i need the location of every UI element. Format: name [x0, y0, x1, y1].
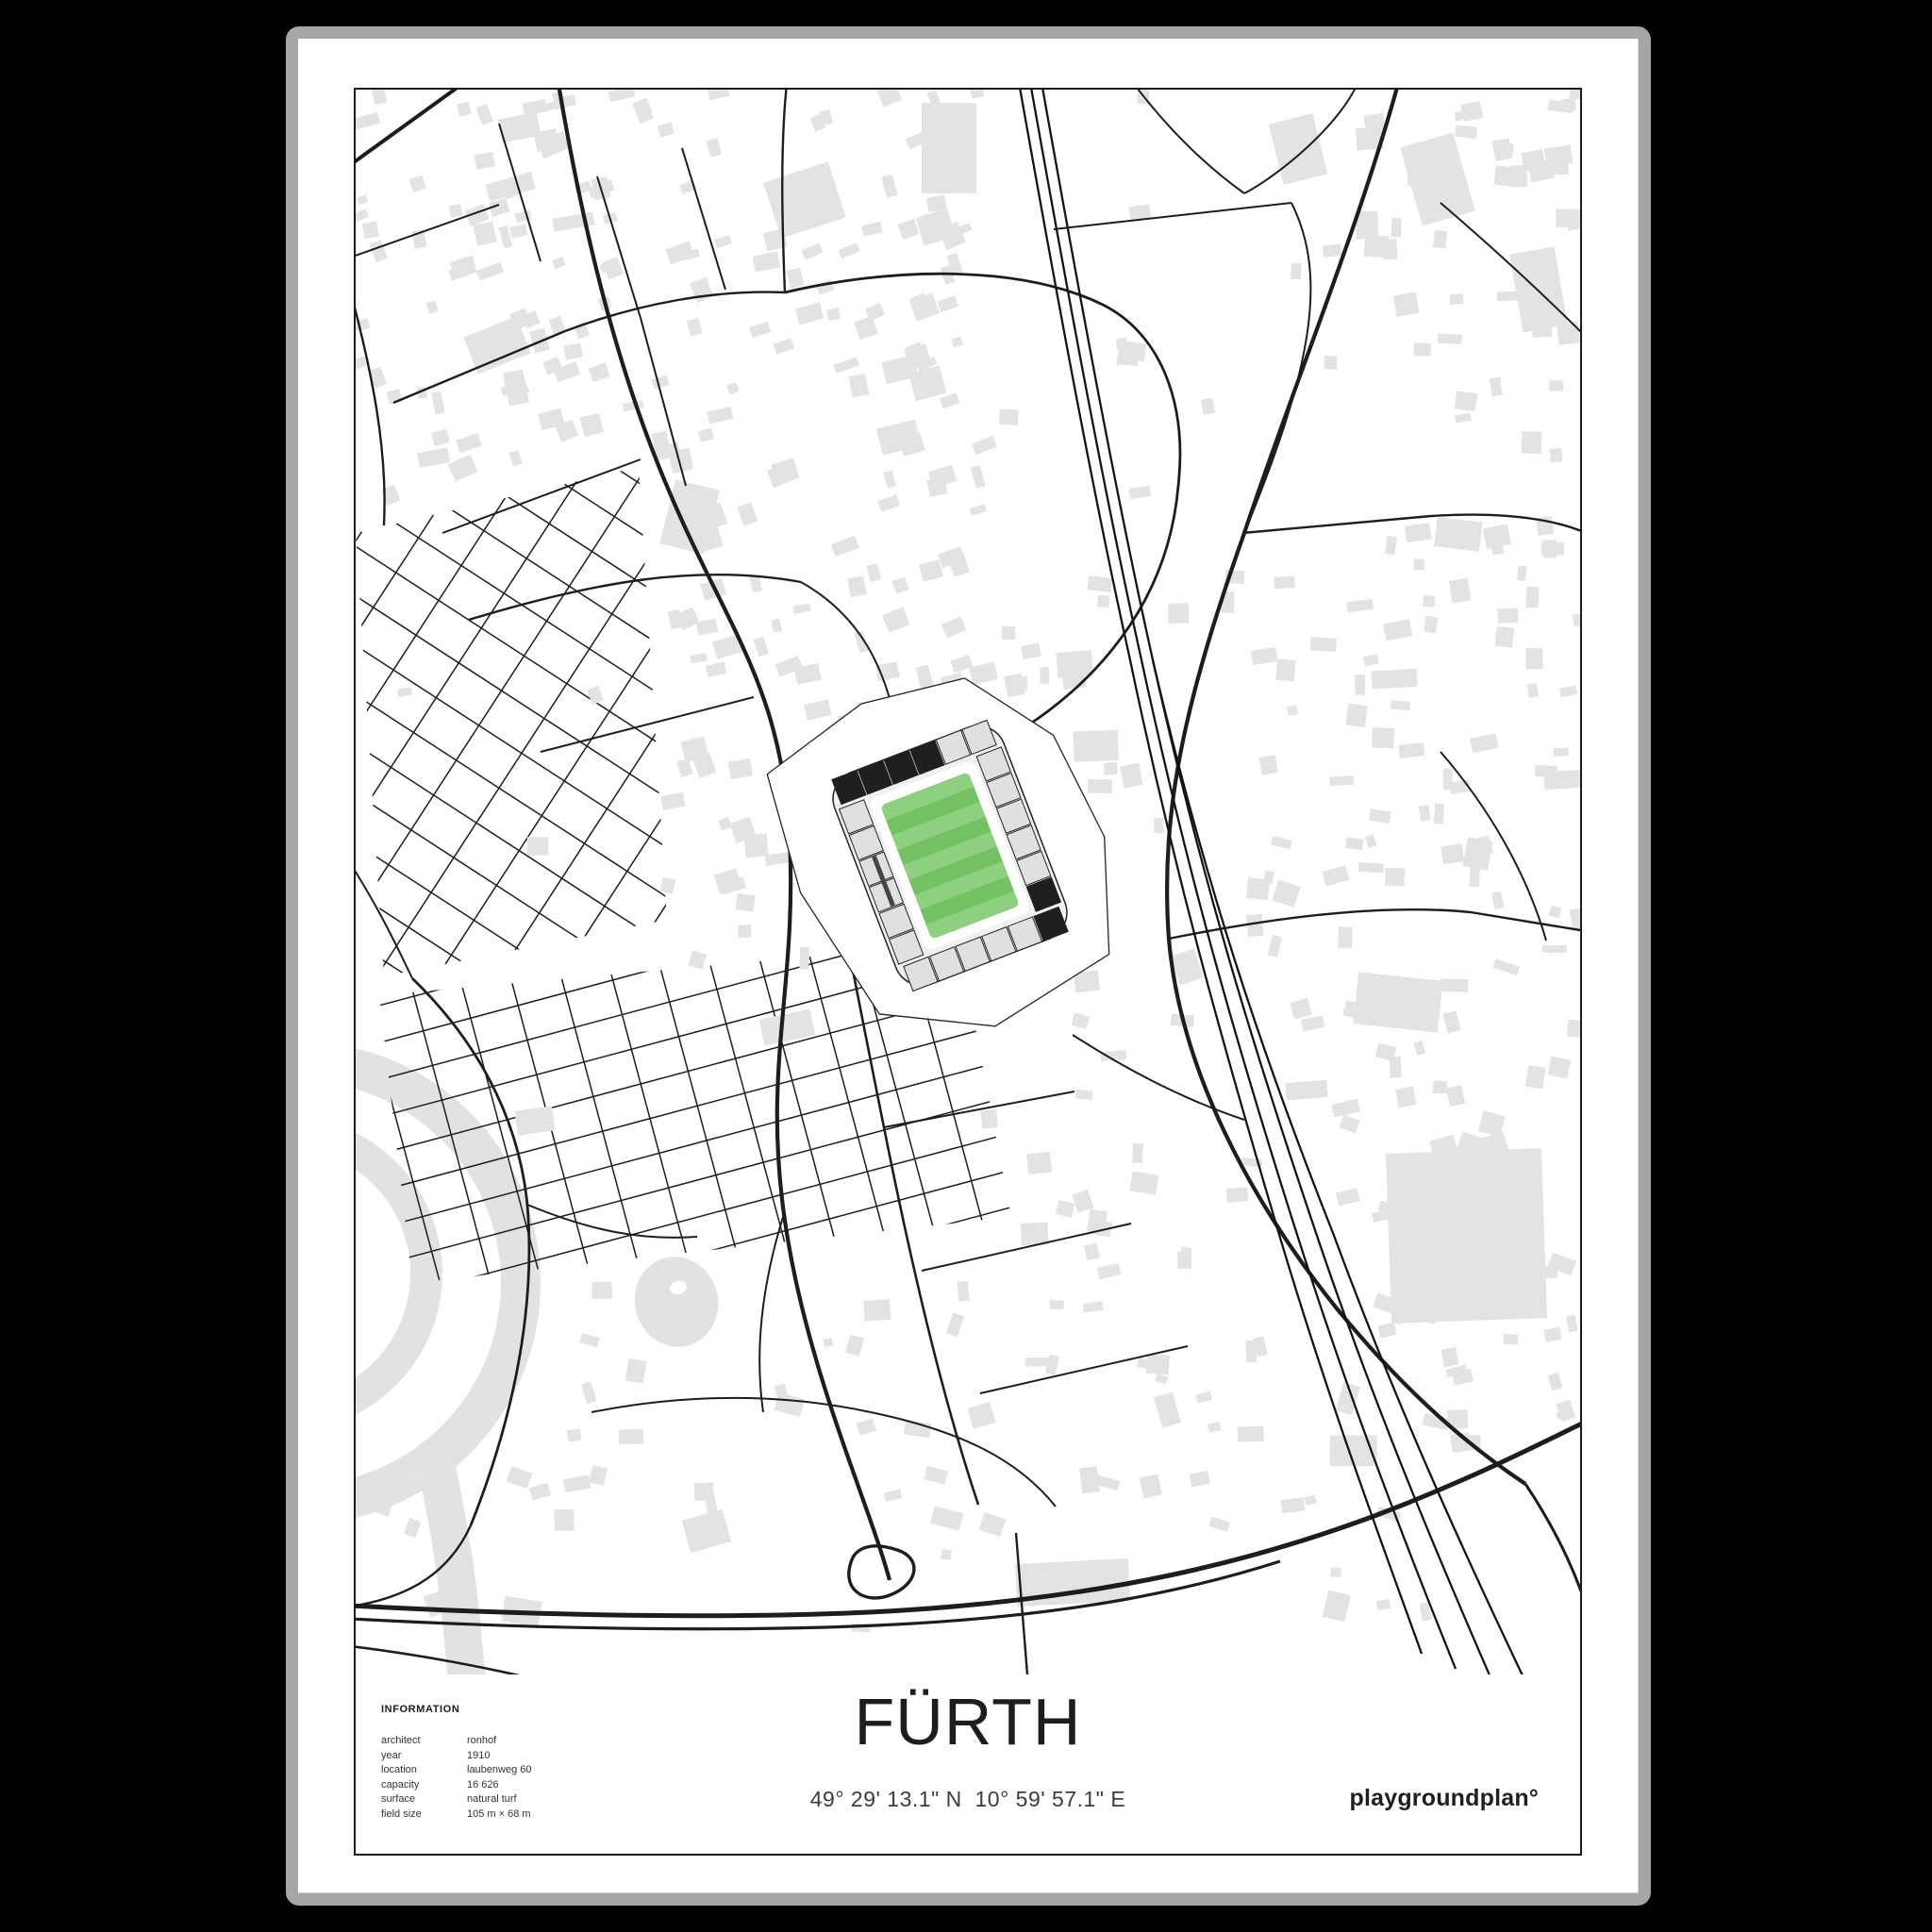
building	[728, 758, 753, 779]
building	[660, 792, 685, 810]
building	[1450, 293, 1464, 304]
road	[641, 318, 686, 486]
building	[1267, 935, 1282, 958]
building	[408, 175, 425, 192]
building	[1195, 1391, 1212, 1403]
building	[1087, 575, 1112, 592]
building	[881, 175, 898, 198]
building	[1543, 769, 1580, 790]
building	[940, 392, 959, 408]
road	[759, 1214, 784, 1412]
building	[1346, 599, 1374, 612]
building	[1441, 844, 1464, 864]
building	[1083, 1301, 1104, 1312]
building	[1271, 836, 1291, 849]
building	[1419, 805, 1431, 822]
building	[602, 257, 624, 279]
building	[1497, 608, 1518, 624]
building	[1525, 648, 1543, 670]
road	[682, 148, 725, 290]
building	[792, 603, 810, 614]
building	[356, 112, 380, 135]
building	[1532, 325, 1553, 338]
building	[1041, 667, 1049, 684]
building	[1455, 125, 1476, 139]
building	[587, 686, 604, 705]
building	[652, 375, 670, 390]
road	[1073, 1035, 1244, 1120]
building	[1521, 431, 1541, 454]
building	[916, 665, 934, 690]
building	[804, 699, 831, 721]
building	[801, 242, 823, 259]
building	[1071, 1012, 1089, 1029]
building	[1570, 908, 1580, 930]
building	[1376, 1599, 1391, 1610]
building	[951, 337, 962, 348]
building	[1154, 818, 1163, 833]
building	[1527, 683, 1539, 698]
building	[763, 161, 846, 238]
building	[1424, 616, 1438, 633]
building	[941, 616, 967, 638]
building	[1002, 626, 1016, 640]
building	[1073, 730, 1119, 762]
building	[1491, 539, 1504, 556]
building	[1454, 111, 1465, 122]
building	[698, 427, 714, 441]
building	[404, 1518, 421, 1538]
building	[1363, 654, 1379, 666]
road	[356, 90, 462, 165]
building	[1353, 972, 1442, 1032]
building	[1189, 1471, 1210, 1488]
building	[1291, 263, 1301, 280]
building	[1434, 804, 1445, 824]
building	[1391, 700, 1410, 710]
building	[1423, 595, 1435, 607]
building	[883, 471, 896, 489]
building	[1556, 209, 1580, 227]
building	[1494, 626, 1514, 648]
building	[958, 1281, 970, 1302]
building	[1557, 322, 1580, 345]
building	[1433, 1081, 1447, 1094]
building	[981, 1109, 998, 1129]
building	[1498, 143, 1513, 154]
building	[1285, 1080, 1327, 1101]
building	[370, 240, 389, 262]
building	[823, 1338, 833, 1347]
info-value: laubenweg 60	[467, 1763, 532, 1778]
building	[714, 235, 732, 248]
building	[356, 208, 369, 225]
building	[1075, 1090, 1092, 1100]
building	[1329, 775, 1354, 786]
building	[1573, 613, 1580, 626]
building	[1566, 1315, 1578, 1333]
building	[1525, 587, 1539, 608]
building	[1238, 1426, 1264, 1442]
building	[999, 409, 1018, 425]
building	[529, 1483, 551, 1501]
building	[1542, 945, 1567, 953]
building	[619, 1429, 644, 1444]
building	[707, 407, 733, 424]
building	[1493, 166, 1519, 188]
building	[552, 257, 565, 269]
building	[726, 382, 740, 395]
road	[1054, 203, 1291, 229]
building	[815, 279, 834, 295]
building	[1330, 1567, 1341, 1577]
building	[941, 1549, 952, 1560]
building	[1395, 1086, 1416, 1108]
building	[854, 316, 877, 340]
building	[799, 947, 808, 970]
building	[589, 1465, 608, 1486]
road	[356, 1561, 1280, 1629]
building	[1413, 1041, 1425, 1056]
building	[1490, 377, 1503, 397]
building	[690, 277, 713, 303]
building	[1177, 1251, 1191, 1269]
building	[735, 893, 755, 912]
building	[1491, 891, 1504, 909]
building	[875, 661, 900, 681]
building	[549, 316, 567, 337]
building	[362, 222, 379, 240]
city-map	[356, 90, 1580, 1854]
building	[1446, 1085, 1465, 1107]
building	[457, 102, 471, 117]
building	[877, 494, 900, 512]
building	[527, 837, 549, 856]
building	[1358, 862, 1384, 874]
building	[1049, 1300, 1063, 1309]
building	[1543, 1326, 1562, 1342]
building	[1496, 1162, 1507, 1181]
building	[1469, 1156, 1478, 1166]
building	[1340, 1115, 1360, 1133]
building	[1301, 1015, 1324, 1031]
building	[564, 343, 583, 360]
building	[688, 950, 707, 969]
building	[924, 1466, 948, 1485]
building	[774, 338, 795, 355]
framed-poster: INFORMATION architect ronhof year 1910 l…	[286, 26, 1651, 1906]
building	[854, 631, 868, 654]
road	[541, 697, 754, 752]
building	[1084, 1242, 1100, 1260]
building	[753, 251, 781, 272]
building	[1391, 218, 1402, 238]
building	[1323, 1591, 1351, 1623]
building	[431, 391, 444, 415]
building	[1021, 643, 1041, 659]
building	[1025, 1357, 1048, 1366]
photo-background: INFORMATION architect ronhof year 1910 l…	[0, 0, 1932, 1932]
building	[1393, 291, 1420, 316]
building	[968, 1402, 996, 1429]
road	[356, 290, 385, 525]
building	[1441, 978, 1468, 991]
building	[676, 758, 692, 777]
building	[826, 308, 841, 321]
building	[659, 877, 675, 894]
building	[1280, 1497, 1305, 1513]
building	[928, 465, 957, 489]
building	[507, 1466, 532, 1489]
building	[1492, 958, 1520, 975]
building	[563, 1474, 591, 1492]
building	[1310, 637, 1337, 652]
map-rule-border: INFORMATION architect ronhof year 1910 l…	[354, 88, 1582, 1856]
building	[1372, 727, 1394, 748]
building	[765, 852, 792, 866]
building	[1251, 647, 1278, 665]
building	[1272, 880, 1300, 908]
building	[456, 433, 481, 453]
building	[1104, 762, 1118, 775]
building	[1517, 566, 1527, 582]
building	[1056, 1200, 1074, 1218]
road	[393, 292, 785, 403]
building	[372, 90, 387, 105]
building	[473, 222, 496, 246]
road	[1525, 1484, 1580, 1599]
road	[527, 1205, 697, 1238]
building	[696, 618, 718, 635]
building	[1120, 763, 1142, 789]
building	[1226, 1187, 1248, 1202]
building	[1553, 747, 1569, 757]
building	[970, 504, 987, 516]
building	[1269, 113, 1328, 185]
building	[1345, 837, 1364, 850]
map-content	[356, 90, 1580, 1693]
building	[476, 262, 504, 281]
building	[1480, 1265, 1493, 1286]
building	[690, 653, 707, 663]
building	[1365, 834, 1377, 848]
building	[1503, 1334, 1518, 1345]
building	[1455, 412, 1472, 423]
building	[1407, 169, 1419, 187]
building	[833, 357, 858, 373]
building	[1438, 334, 1462, 344]
building	[475, 104, 493, 125]
building	[1338, 926, 1352, 948]
info-label: location	[381, 1763, 467, 1778]
building	[1434, 517, 1483, 552]
building	[523, 99, 547, 116]
building	[509, 224, 527, 239]
building	[754, 637, 769, 657]
building	[1129, 486, 1151, 499]
building	[787, 268, 805, 289]
building	[579, 1333, 599, 1347]
building	[581, 1381, 597, 1404]
building	[426, 300, 439, 314]
building	[1470, 1175, 1487, 1191]
building	[514, 1106, 555, 1135]
building	[658, 122, 675, 137]
building	[704, 1492, 718, 1514]
building	[417, 447, 450, 468]
building	[919, 559, 943, 581]
building	[863, 1299, 891, 1321]
building	[1414, 558, 1424, 570]
building	[475, 152, 495, 170]
building	[1414, 342, 1431, 356]
building	[1431, 1219, 1451, 1230]
building	[1567, 1020, 1580, 1038]
building	[567, 1428, 582, 1441]
building	[847, 575, 866, 597]
building	[1547, 1056, 1571, 1078]
building	[946, 1312, 964, 1337]
building	[608, 90, 636, 102]
building	[1287, 705, 1298, 716]
building	[358, 195, 368, 205]
poster-title: FÜRTH	[356, 1689, 1580, 1755]
building	[849, 374, 869, 397]
road	[884, 1091, 1074, 1127]
building	[1369, 808, 1391, 823]
building	[1383, 619, 1412, 641]
building	[1116, 357, 1138, 366]
building	[589, 362, 610, 382]
building	[509, 450, 523, 467]
building	[1274, 576, 1294, 589]
building	[503, 369, 529, 406]
building	[1491, 1240, 1510, 1262]
building	[979, 1512, 1007, 1537]
building	[937, 295, 958, 312]
pond	[625, 1247, 728, 1357]
building	[1045, 1355, 1059, 1375]
building	[904, 1420, 932, 1439]
building	[1355, 675, 1365, 695]
building	[1385, 536, 1397, 555]
building	[838, 242, 859, 258]
building	[1548, 1373, 1563, 1391]
building	[1201, 397, 1215, 414]
building	[1561, 98, 1576, 111]
building	[950, 655, 973, 673]
building	[1455, 391, 1477, 411]
brand-logo: playgroundplan°	[1350, 1785, 1540, 1812]
building	[1154, 1391, 1181, 1427]
building	[1097, 595, 1109, 608]
building	[1385, 868, 1405, 886]
building	[1470, 733, 1498, 753]
building	[1168, 603, 1189, 624]
building	[866, 563, 881, 582]
building	[1129, 1172, 1158, 1195]
building	[1323, 243, 1342, 258]
road	[801, 582, 893, 712]
building	[1097, 1263, 1122, 1279]
building	[831, 536, 859, 558]
building	[1259, 755, 1278, 774]
building	[1569, 90, 1580, 99]
building	[969, 662, 998, 685]
building	[1405, 523, 1432, 542]
building	[795, 302, 824, 325]
building	[1372, 669, 1418, 690]
building	[1462, 837, 1492, 870]
building	[1398, 742, 1424, 758]
building	[1290, 998, 1312, 1020]
building	[1550, 448, 1563, 462]
building	[1345, 703, 1367, 726]
building	[1548, 905, 1561, 918]
building	[1088, 779, 1112, 793]
building	[1324, 356, 1338, 370]
building	[1450, 780, 1471, 794]
building	[1336, 1188, 1360, 1206]
building	[898, 219, 920, 240]
building	[969, 90, 985, 99]
building	[554, 1509, 574, 1531]
building	[449, 204, 462, 218]
road	[1169, 909, 1580, 939]
building	[686, 318, 703, 337]
building	[1056, 650, 1093, 678]
building	[884, 1489, 903, 1502]
building	[1155, 1374, 1168, 1385]
building	[1132, 1143, 1142, 1163]
building	[1497, 291, 1519, 302]
building	[1441, 1347, 1459, 1368]
building	[1433, 230, 1447, 249]
building	[1305, 1494, 1317, 1506]
building	[1246, 877, 1270, 900]
road	[1244, 203, 1310, 533]
building	[1208, 1517, 1229, 1532]
building	[591, 1281, 612, 1299]
building	[930, 1506, 963, 1530]
building	[625, 1358, 647, 1384]
building	[431, 429, 450, 446]
building	[875, 90, 902, 108]
building	[1543, 540, 1557, 558]
building	[1544, 145, 1574, 167]
building	[972, 436, 997, 456]
building	[1449, 578, 1471, 604]
building	[1026, 1152, 1052, 1174]
building	[1509, 246, 1568, 332]
road	[1134, 90, 1244, 193]
building	[771, 618, 782, 633]
building	[397, 687, 412, 697]
building	[845, 1335, 864, 1357]
building	[1364, 235, 1390, 258]
building	[1559, 686, 1577, 698]
building	[1140, 1474, 1162, 1498]
building	[1079, 1466, 1100, 1493]
building	[580, 413, 604, 437]
building	[1375, 1043, 1396, 1061]
building	[1442, 1010, 1461, 1034]
building	[882, 608, 909, 633]
building	[1331, 1099, 1360, 1118]
building	[971, 465, 986, 489]
building	[1322, 865, 1349, 886]
building	[682, 1509, 732, 1553]
